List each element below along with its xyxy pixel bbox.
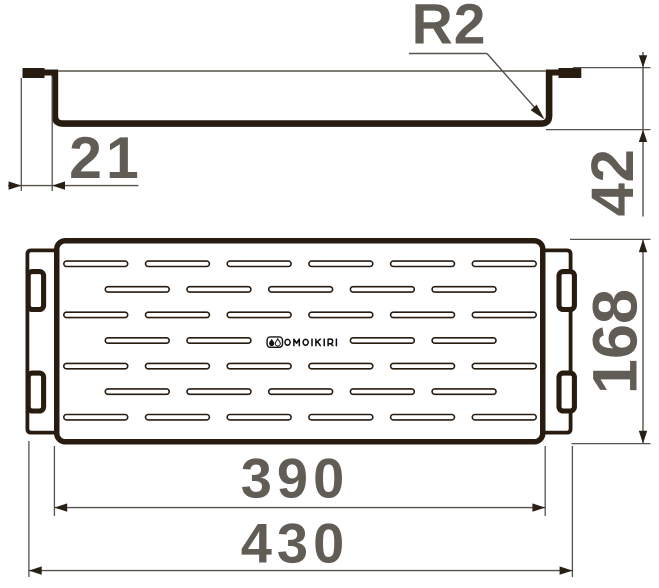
svg-text:390: 390 (241, 447, 349, 510)
svg-text:168: 168 (581, 289, 651, 394)
svg-text:R2: R2 (412, 0, 487, 57)
svg-text:21: 21 (69, 125, 143, 191)
svg-text:42: 42 (579, 149, 646, 217)
svg-text:430: 430 (241, 512, 349, 575)
